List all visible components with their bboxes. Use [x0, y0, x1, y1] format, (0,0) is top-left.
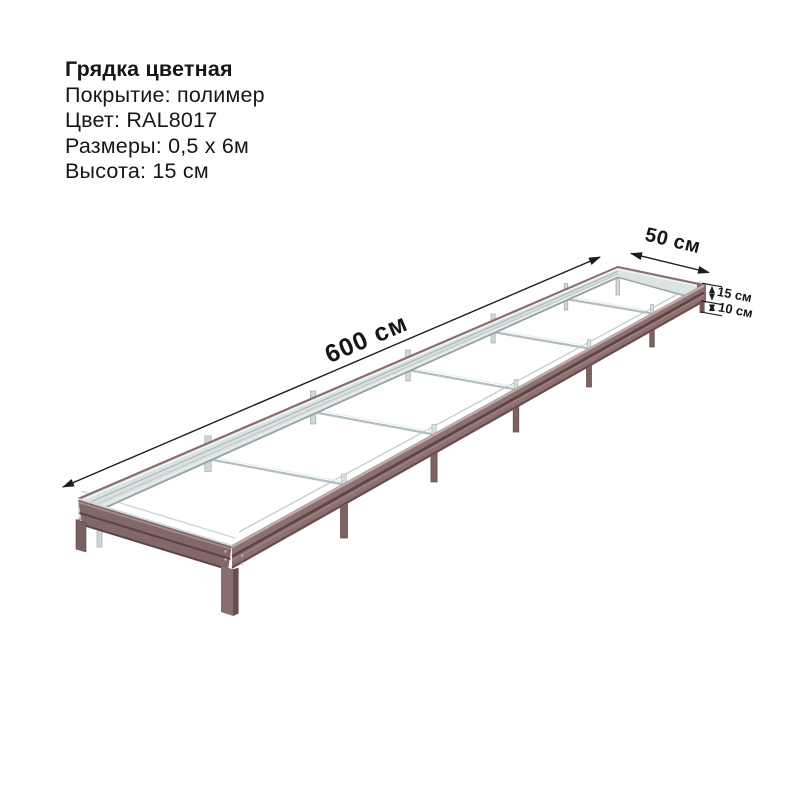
width-dimension-label: 50 см — [643, 224, 703, 259]
front-wall-legs — [341, 330, 655, 539]
product-card: Грядка цветная Покрытие: полимер Цвет: R… — [0, 0, 800, 800]
length-dimension-label: 600 см — [321, 309, 412, 369]
back-wall-stakes — [97, 276, 620, 547]
length-dimension-arrow — [63, 257, 600, 487]
front-wall — [232, 284, 704, 569]
garden-bed-illustration: 600 см 50 см 15 см 10 см — [0, 0, 800, 800]
